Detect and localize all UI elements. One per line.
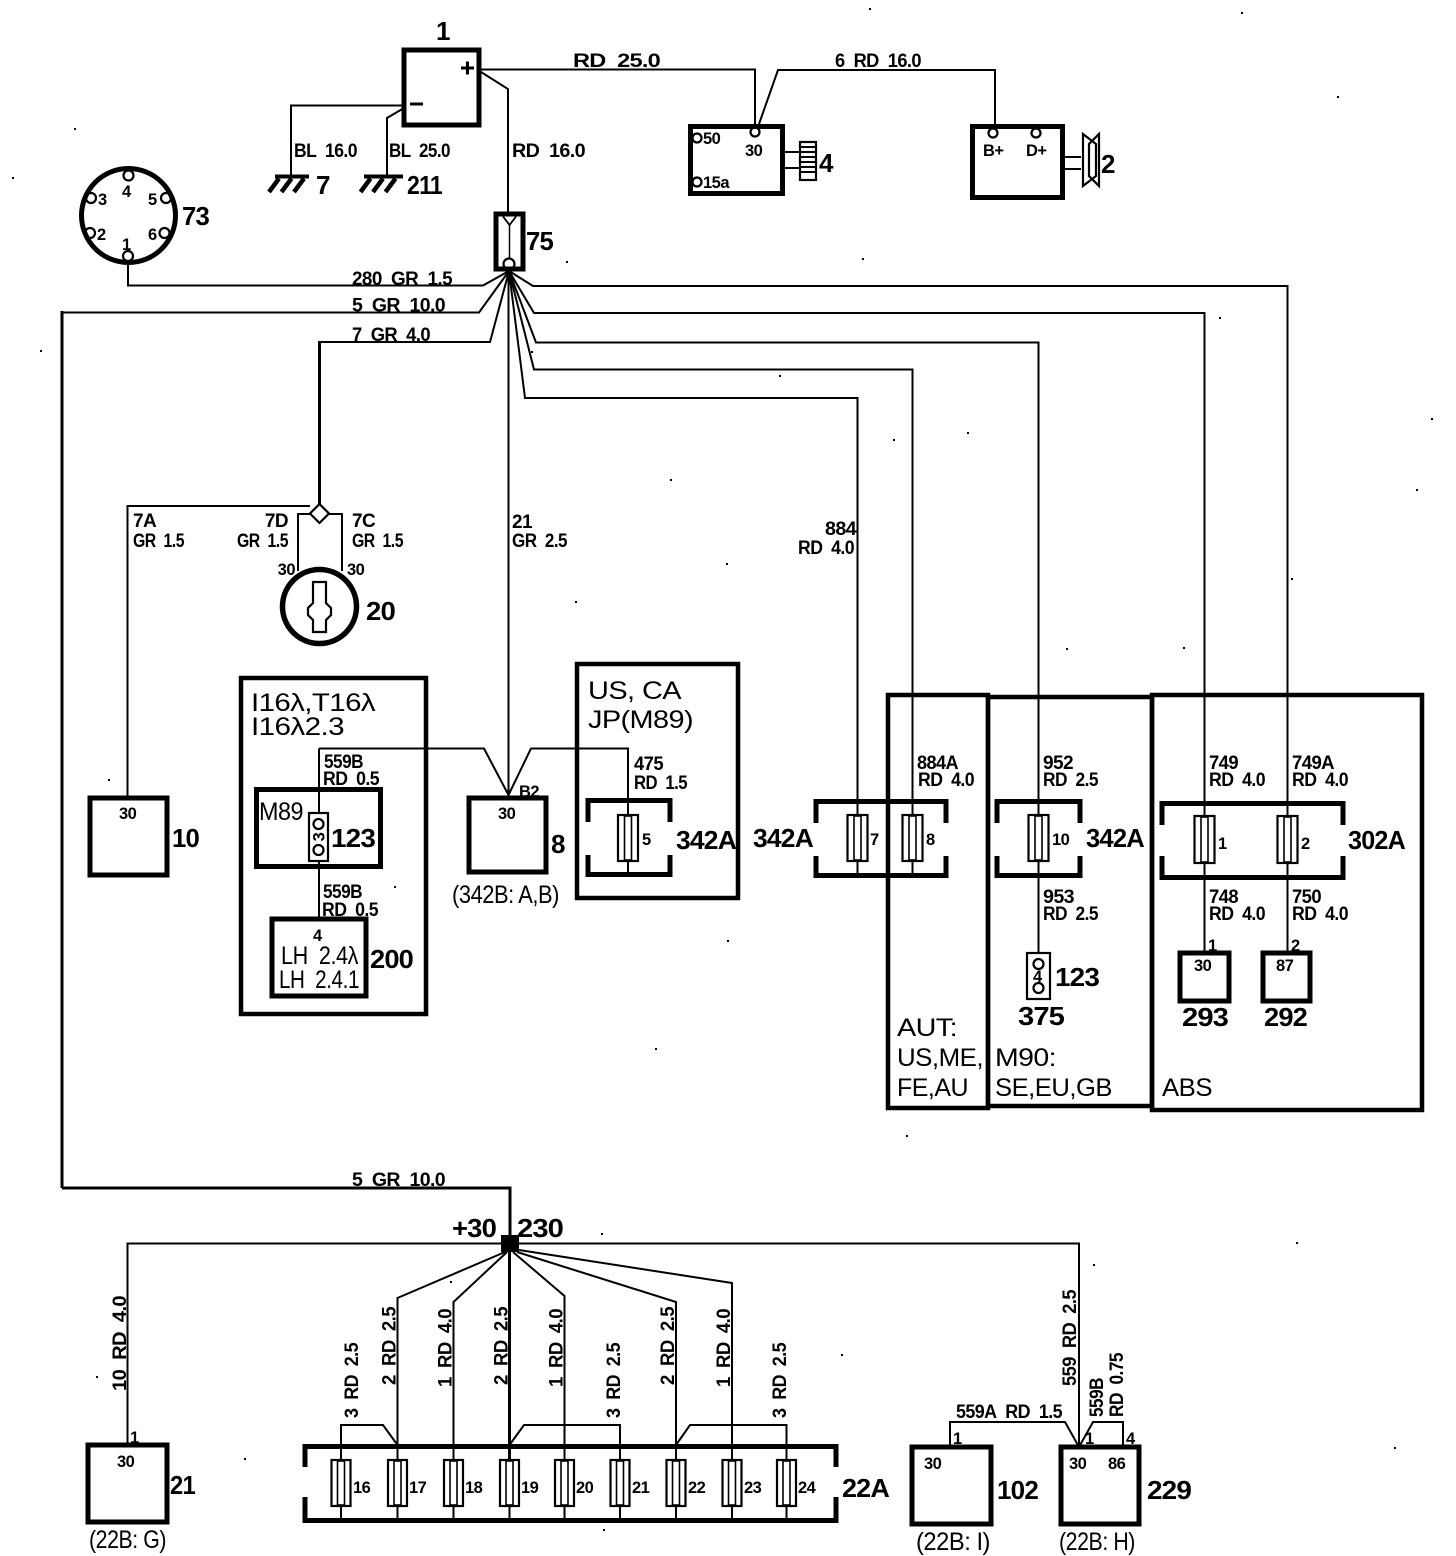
svg-text:(22B: I): (22B: I)	[916, 1528, 990, 1556]
svg-text:292: 292	[1264, 1002, 1307, 1032]
svg-text:2: 2	[97, 226, 106, 244]
svg-text:4: 4	[819, 148, 834, 178]
svg-text:10: 10	[172, 823, 199, 853]
svg-text:4: 4	[122, 183, 132, 201]
svg-text:1: 1	[436, 16, 450, 46]
svg-text:375: 375	[1018, 1001, 1064, 1031]
svg-text:RD 16.0: RD 16.0	[512, 141, 585, 162]
svg-text:GR 1.5: GR 1.5	[133, 531, 185, 552]
svg-text:3 RD 2.5: 3 RD 2.5	[770, 1342, 791, 1418]
svg-text:7: 7	[870, 831, 879, 849]
svg-text:10 RD 4.0: 10 RD 4.0	[110, 1296, 131, 1391]
svg-text:1 RD 4.0: 1 RD 4.0	[714, 1309, 735, 1387]
svg-text:229: 229	[1147, 1475, 1191, 1505]
svg-text:24: 24	[798, 1479, 817, 1497]
svg-text:20: 20	[576, 1479, 594, 1497]
svg-text:342A: 342A	[1086, 823, 1145, 853]
svg-text:(342B: A,B): (342B: A,B)	[452, 881, 559, 909]
svg-text:RD 25.0: RD 25.0	[573, 51, 660, 72]
svg-text:23: 23	[744, 1479, 762, 1497]
svg-text:5 GR 10.0: 5 GR 10.0	[352, 1170, 445, 1191]
svg-text:87: 87	[1276, 957, 1294, 975]
svg-text:30: 30	[347, 561, 365, 579]
svg-text:200: 200	[370, 944, 413, 974]
svg-text:RD 4.0: RD 4.0	[918, 770, 974, 791]
svg-text:M89: M89	[259, 798, 303, 826]
svg-text:5 GR 10.0: 5 GR 10.0	[352, 296, 445, 317]
svg-text:7A: 7A	[133, 511, 157, 532]
svg-text:30: 30	[498, 805, 516, 823]
svg-text:75: 75	[526, 226, 553, 256]
svg-text:2 RD 2.5: 2 RD 2.5	[380, 1306, 401, 1385]
svg-text:30: 30	[117, 1453, 135, 1471]
svg-text:GR 1.5: GR 1.5	[352, 531, 404, 552]
svg-text:30: 30	[745, 142, 763, 160]
svg-text:RD 4.0: RD 4.0	[798, 538, 854, 559]
svg-text:1 RD 4.0: 1 RD 4.0	[436, 1309, 457, 1387]
svg-text:BL 25.0: BL 25.0	[389, 141, 450, 162]
svg-text:10: 10	[1052, 831, 1070, 849]
svg-text:3: 3	[311, 832, 329, 841]
svg-text:123: 123	[1055, 962, 1099, 992]
svg-text:3 RD 2.5: 3 RD 2.5	[604, 1342, 625, 1418]
svg-text:30: 30	[924, 1455, 942, 1473]
svg-text:211: 211	[407, 170, 442, 200]
svg-text:US, CA: US, CA	[588, 677, 682, 705]
svg-text:123: 123	[331, 823, 375, 853]
svg-text:102: 102	[997, 1475, 1038, 1505]
svg-text:4: 4	[1033, 968, 1043, 986]
svg-text:5: 5	[148, 191, 157, 209]
svg-text:884: 884	[825, 519, 857, 540]
svg-text:SE,EU,GB: SE,EU,GB	[995, 1074, 1112, 1102]
svg-text:M90:: M90:	[995, 1044, 1056, 1072]
svg-text:2: 2	[1301, 835, 1310, 853]
svg-text:GR 1.5: GR 1.5	[237, 531, 289, 552]
svg-text:BL 16.0: BL 16.0	[294, 141, 357, 162]
svg-text:LH 2.4.1: LH 2.4.1	[279, 966, 359, 994]
svg-text:293: 293	[1182, 1002, 1228, 1032]
svg-text:559B: 559B	[1087, 1378, 1108, 1417]
svg-text:8: 8	[551, 829, 565, 859]
svg-text:20: 20	[366, 596, 395, 626]
svg-text:(22B: H): (22B: H)	[1059, 1528, 1135, 1556]
svg-text:475: 475	[634, 754, 664, 775]
svg-text:280 GR 1.5: 280 GR 1.5	[352, 269, 453, 290]
svg-text:US,ME,: US,ME,	[897, 1044, 983, 1072]
svg-text:342A: 342A	[676, 825, 737, 855]
svg-text:6: 6	[148, 226, 157, 244]
svg-text:30: 30	[1194, 957, 1212, 975]
svg-text:230: 230	[517, 1213, 563, 1243]
svg-text:559A RD 1.5: 559A RD 1.5	[956, 1402, 1063, 1423]
svg-text:RD 4.0: RD 4.0	[1292, 770, 1348, 791]
svg-text:21: 21	[512, 512, 533, 533]
svg-text:FE,AU: FE,AU	[897, 1074, 968, 1102]
svg-text:21: 21	[632, 1479, 650, 1497]
svg-text:16: 16	[353, 1479, 371, 1497]
svg-text:RD 2.5: RD 2.5	[1043, 770, 1099, 791]
svg-text:18: 18	[465, 1479, 483, 1497]
svg-text:I16λ2.3: I16λ2.3	[251, 713, 344, 741]
svg-text:RD 4.0: RD 4.0	[1209, 770, 1265, 791]
svg-text:73: 73	[182, 201, 209, 231]
svg-text:15a: 15a	[703, 174, 730, 192]
svg-text:1 RD 4.0: 1 RD 4.0	[547, 1309, 568, 1387]
svg-text:302A: 302A	[1348, 825, 1406, 855]
svg-text:559 RD 2.5: 559 RD 2.5	[1060, 1289, 1081, 1386]
svg-text:RD 2.5: RD 2.5	[1043, 904, 1099, 925]
svg-text:6 RD 16.0: 6 RD 16.0	[835, 51, 921, 72]
svg-text:8: 8	[926, 831, 935, 849]
svg-text:86: 86	[1108, 1455, 1126, 1473]
svg-text:22: 22	[688, 1479, 706, 1497]
svg-text:2 RD 2.5: 2 RD 2.5	[658, 1306, 679, 1385]
svg-text:342A: 342A	[753, 823, 814, 853]
svg-text:7D: 7D	[265, 511, 288, 532]
svg-text:1: 1	[122, 236, 131, 254]
svg-text:JP(M89): JP(M89)	[588, 706, 693, 734]
svg-text:22A: 22A	[842, 1473, 890, 1503]
svg-text:30: 30	[278, 561, 296, 579]
svg-text:(22B: G): (22B: G)	[89, 1526, 166, 1554]
svg-text:30: 30	[1069, 1455, 1087, 1473]
svg-text:+30: +30	[452, 1213, 496, 1243]
svg-text:RD 4.0: RD 4.0	[1209, 904, 1265, 925]
svg-text:RD 1.5: RD 1.5	[634, 773, 688, 794]
svg-text:7 GR 4.0: 7 GR 4.0	[352, 325, 430, 346]
svg-text:17: 17	[409, 1479, 427, 1497]
svg-text:1: 1	[1218, 835, 1227, 853]
svg-text:AUT:: AUT:	[897, 1014, 957, 1042]
svg-text:ABS: ABS	[1162, 1074, 1212, 1102]
svg-text:B+: B+	[983, 142, 1004, 160]
svg-text:RD 0.5: RD 0.5	[323, 769, 380, 790]
svg-text:19: 19	[521, 1479, 539, 1497]
svg-text:RD 4.0: RD 4.0	[1292, 904, 1348, 925]
svg-text:5: 5	[642, 831, 651, 849]
svg-text:3 RD 2.5: 3 RD 2.5	[342, 1342, 363, 1418]
svg-text:D+: D+	[1026, 142, 1047, 160]
svg-text:GR 2.5: GR 2.5	[512, 531, 568, 552]
svg-text:2 RD 2.5: 2 RD 2.5	[492, 1306, 513, 1385]
svg-text:7C: 7C	[352, 511, 376, 532]
svg-text:RD 0.75: RD 0.75	[1107, 1352, 1128, 1417]
svg-text:30: 30	[119, 805, 137, 823]
svg-text:3: 3	[98, 191, 107, 209]
svg-text:21: 21	[170, 1470, 195, 1500]
svg-text:50: 50	[703, 130, 721, 148]
svg-text:7: 7	[316, 170, 330, 200]
svg-text:2: 2	[1101, 149, 1115, 179]
